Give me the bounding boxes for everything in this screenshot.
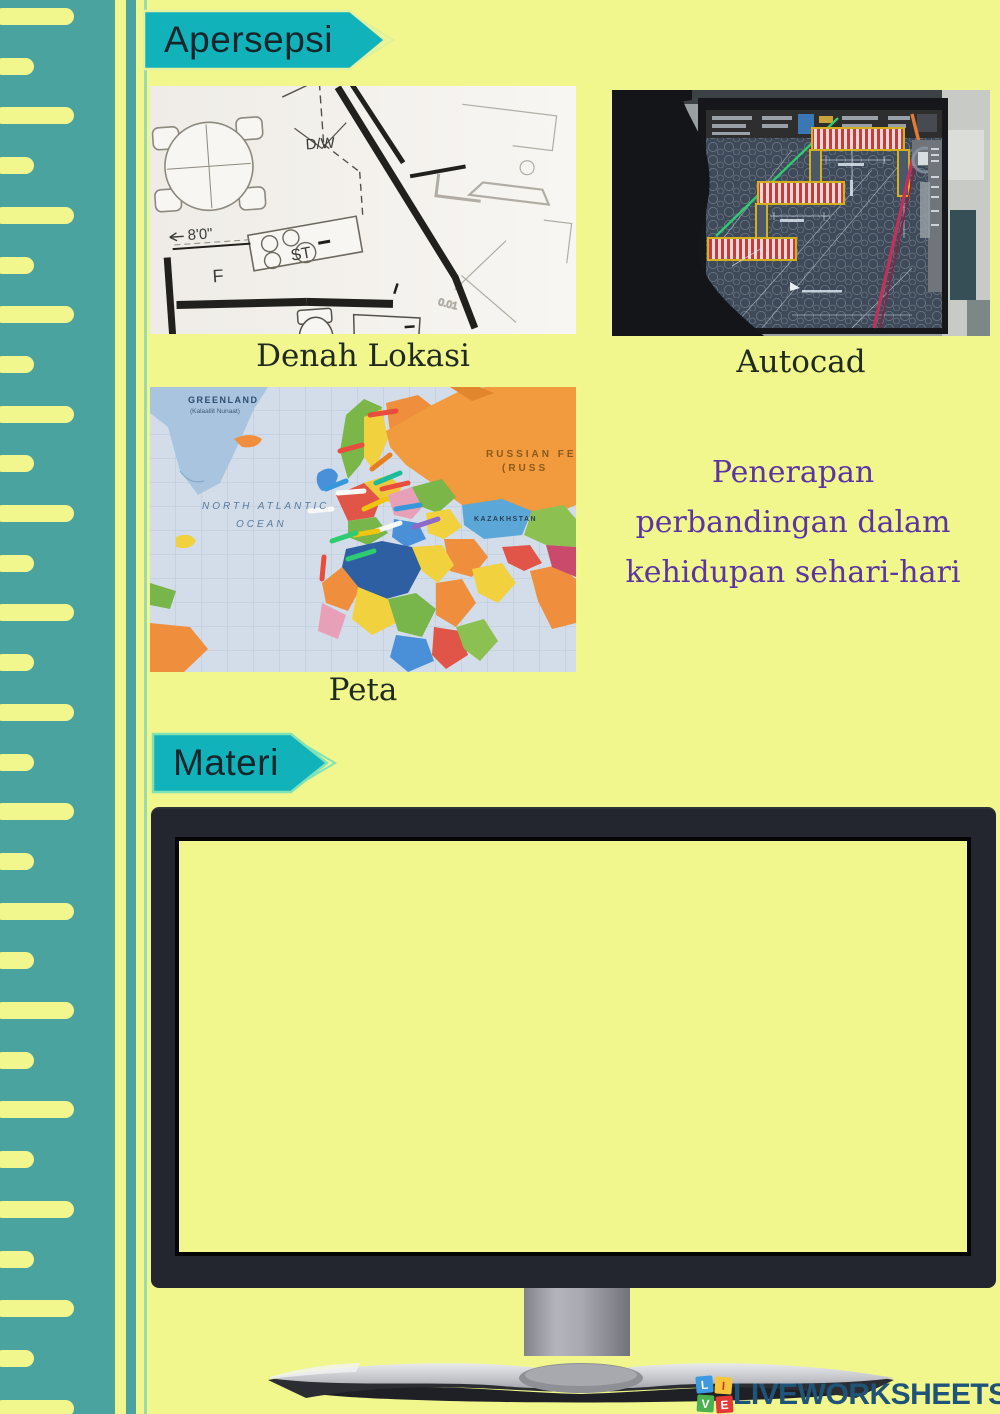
headline-text: Penerapan perbandingan dalam kehidupan s… <box>581 448 1000 598</box>
logo-square-e: E <box>715 1395 733 1413</box>
notebook-dash <box>0 356 34 373</box>
notebook-dash <box>0 1300 74 1317</box>
notebook-dash <box>0 1002 74 1019</box>
logo-square-l: L <box>695 1375 713 1393</box>
notebook-dash <box>0 1350 34 1367</box>
notebook-dash <box>0 306 74 323</box>
monitor-frame <box>151 807 996 1288</box>
map-label-greenland-sub: (Kalaallit Nunaat) <box>190 408 240 415</box>
notebook-dash <box>0 853 34 870</box>
notebook-dash <box>0 1251 34 1268</box>
liveworksheets-logo[interactable]: L I V E LIVEWORKSHEETS <box>696 1376 1000 1413</box>
notebook-dash <box>0 555 34 572</box>
apersepsi-badge: Apersepsi <box>142 8 402 72</box>
materi-badge-label: Materi <box>173 731 279 795</box>
notebook-dash <box>0 903 74 920</box>
notebook-dash <box>0 604 74 621</box>
map-label-ocean-2: OCEAN <box>236 519 287 530</box>
headline-line-2: perbandingan dalam <box>581 498 1000 548</box>
notebook-dash <box>0 1101 74 1118</box>
notebook-dash <box>0 58 34 75</box>
floorplan-label-dim: 8'0" <box>187 225 213 244</box>
logo-square-i: I <box>714 1376 732 1394</box>
notebook-dash <box>0 704 74 721</box>
notebook-dash <box>0 8 74 25</box>
notebook-dash <box>0 406 74 423</box>
notebook-dash <box>0 1151 34 1168</box>
map-label-russia-1: RUSSIAN FE <box>486 449 576 460</box>
vertical-rule-line <box>144 0 147 1414</box>
notebook-dash <box>0 1052 34 1069</box>
map-image: GREENLAND (Kalaallit Nunaat) NORTH ATLAN… <box>150 387 576 677</box>
notebook-dash <box>0 107 74 124</box>
autocad-illustration <box>612 90 990 336</box>
floorplan-illustration: 0.01 <box>150 86 576 334</box>
map-illustration: GREENLAND (Kalaallit Nunaat) NORTH ATLAN… <box>150 387 576 672</box>
autocad-image <box>612 90 990 341</box>
notebook-dash <box>0 1400 74 1414</box>
notebook-dash <box>0 952 34 969</box>
logo-square-v: V <box>697 1395 715 1413</box>
floorplan-label-dw: D/W <box>305 134 336 153</box>
map-label-kazakhstan: KAZAKHSTAN <box>474 516 537 523</box>
notebook-dash <box>0 505 74 522</box>
apersepsi-badge-label: Apersepsi <box>164 8 333 72</box>
autocad-caption: Autocad <box>612 344 990 380</box>
floorplan-image: 0.01 <box>150 86 576 339</box>
materi-badge: Materi <box>151 731 346 795</box>
floorplan-label-st: ST <box>289 244 312 264</box>
worksheet-page: Apersepsi 0.01 <box>0 0 1000 1414</box>
map-label-russia-2: (RUSS <box>502 463 548 474</box>
notebook-dash <box>0 1201 74 1218</box>
floorplan-label-f: F <box>212 266 224 287</box>
sidebar-stripe-teal <box>126 0 136 1414</box>
sidebar-stripe-yellow <box>115 0 126 1414</box>
notebook-dash <box>0 157 34 174</box>
floorplan-caption: Denah Lokasi <box>150 338 576 374</box>
notebook-dash <box>0 257 34 274</box>
liveworksheets-logo-icon: L I V E <box>696 1376 733 1413</box>
notebook-dash <box>0 207 74 224</box>
notebook-dash <box>0 654 34 671</box>
sidebar-band <box>0 0 115 1414</box>
notebook-dash <box>0 455 34 472</box>
map-label-ocean-1: NORTH ATLANTIC <box>202 501 329 512</box>
map-label-greenland: GREENLAND <box>188 395 259 405</box>
headline-line-3: kehidupan sehari-hari <box>581 548 1000 598</box>
notebook-dash <box>0 803 74 820</box>
map-caption: Peta <box>150 672 576 708</box>
notebook-dash <box>0 754 34 771</box>
headline-line-1: Penerapan <box>581 448 1000 498</box>
monitor-screen <box>175 837 971 1256</box>
liveworksheets-logo-text: LIVEWORKSHEETS <box>733 1376 1000 1413</box>
